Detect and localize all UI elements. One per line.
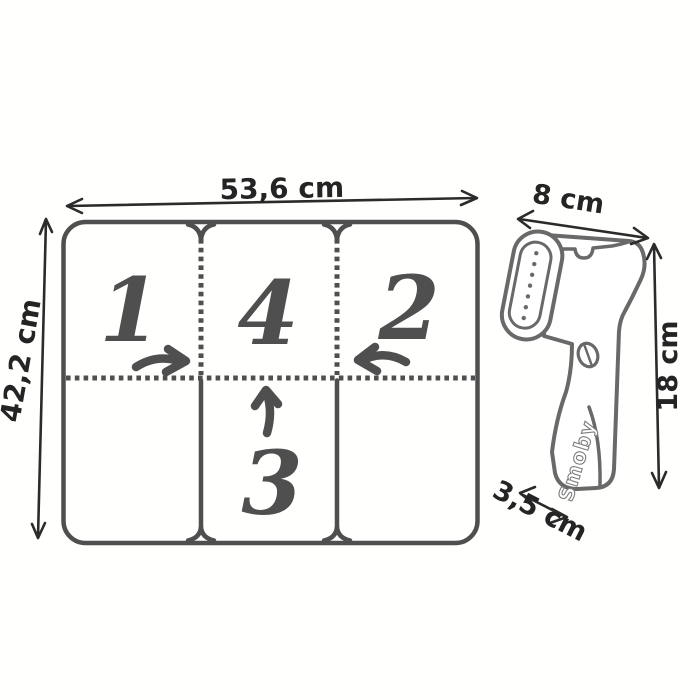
panel-number-3: 3	[241, 431, 302, 535]
panel-number-1: 1	[99, 258, 160, 362]
fold-arrow-up-icon	[255, 390, 278, 433]
panel-corner-join	[324, 225, 350, 241]
steamer-illustration: Smoby 8 cm 18 cm 3,5 cm	[488, 179, 684, 549]
panel-number-2: 2	[377, 256, 439, 360]
board-width-label: 53,6 cm	[219, 171, 344, 206]
panel-number-4: 4	[237, 261, 298, 365]
steamer-height-label: 18 cm	[653, 320, 684, 411]
dimension-arrow-board-height	[32, 219, 52, 538]
product-dimensions-diagram: 1 4 2 3 53,6 cm 42,2 cm	[0, 0, 700, 700]
panel-corner-join	[188, 527, 214, 541]
panel-corner-join	[324, 527, 350, 541]
steamer-width-label: 8 cm	[530, 179, 606, 221]
diagram-svg: 1 4 2 3 53,6 cm 42,2 cm	[0, 0, 700, 700]
folding-board: 1 4 2 3 53,6 cm 42,2 cm	[0, 171, 478, 543]
panel-corner-join	[188, 225, 214, 241]
